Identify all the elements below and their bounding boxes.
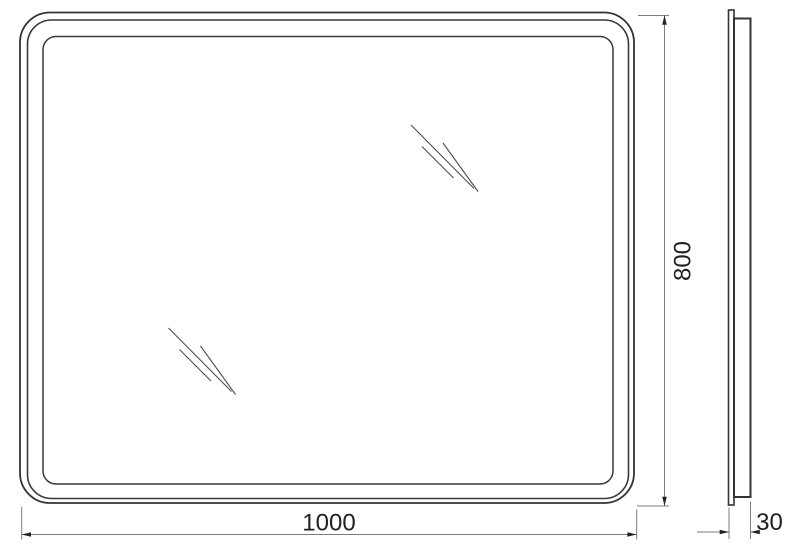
width-dim-arrow-left-icon bbox=[22, 532, 31, 537]
depth-dimension-label: 30 bbox=[756, 509, 783, 536]
side-view bbox=[729, 10, 751, 505]
width-dim-arrow-right-icon bbox=[627, 532, 636, 537]
front-view-outer-edge bbox=[20, 13, 634, 504]
depth-dimension: 30 bbox=[697, 502, 783, 540]
width-dimension: 1000 bbox=[22, 507, 637, 540]
width-dimension-label: 1000 bbox=[302, 510, 355, 537]
depth-dim-arrow-left-icon bbox=[720, 530, 729, 535]
height-dim-arrow-bottom-icon bbox=[662, 497, 667, 506]
technical-drawing-canvas: 1000 800 30 bbox=[0, 0, 800, 551]
height-dim-arrow-top-icon bbox=[662, 16, 667, 25]
front-view bbox=[20, 13, 634, 504]
side-view-body bbox=[734, 19, 751, 498]
height-dimension-label: 800 bbox=[670, 241, 697, 281]
height-dimension: 800 bbox=[637, 16, 697, 507]
mirror-dimension-drawing: 1000 800 30 bbox=[0, 0, 800, 551]
